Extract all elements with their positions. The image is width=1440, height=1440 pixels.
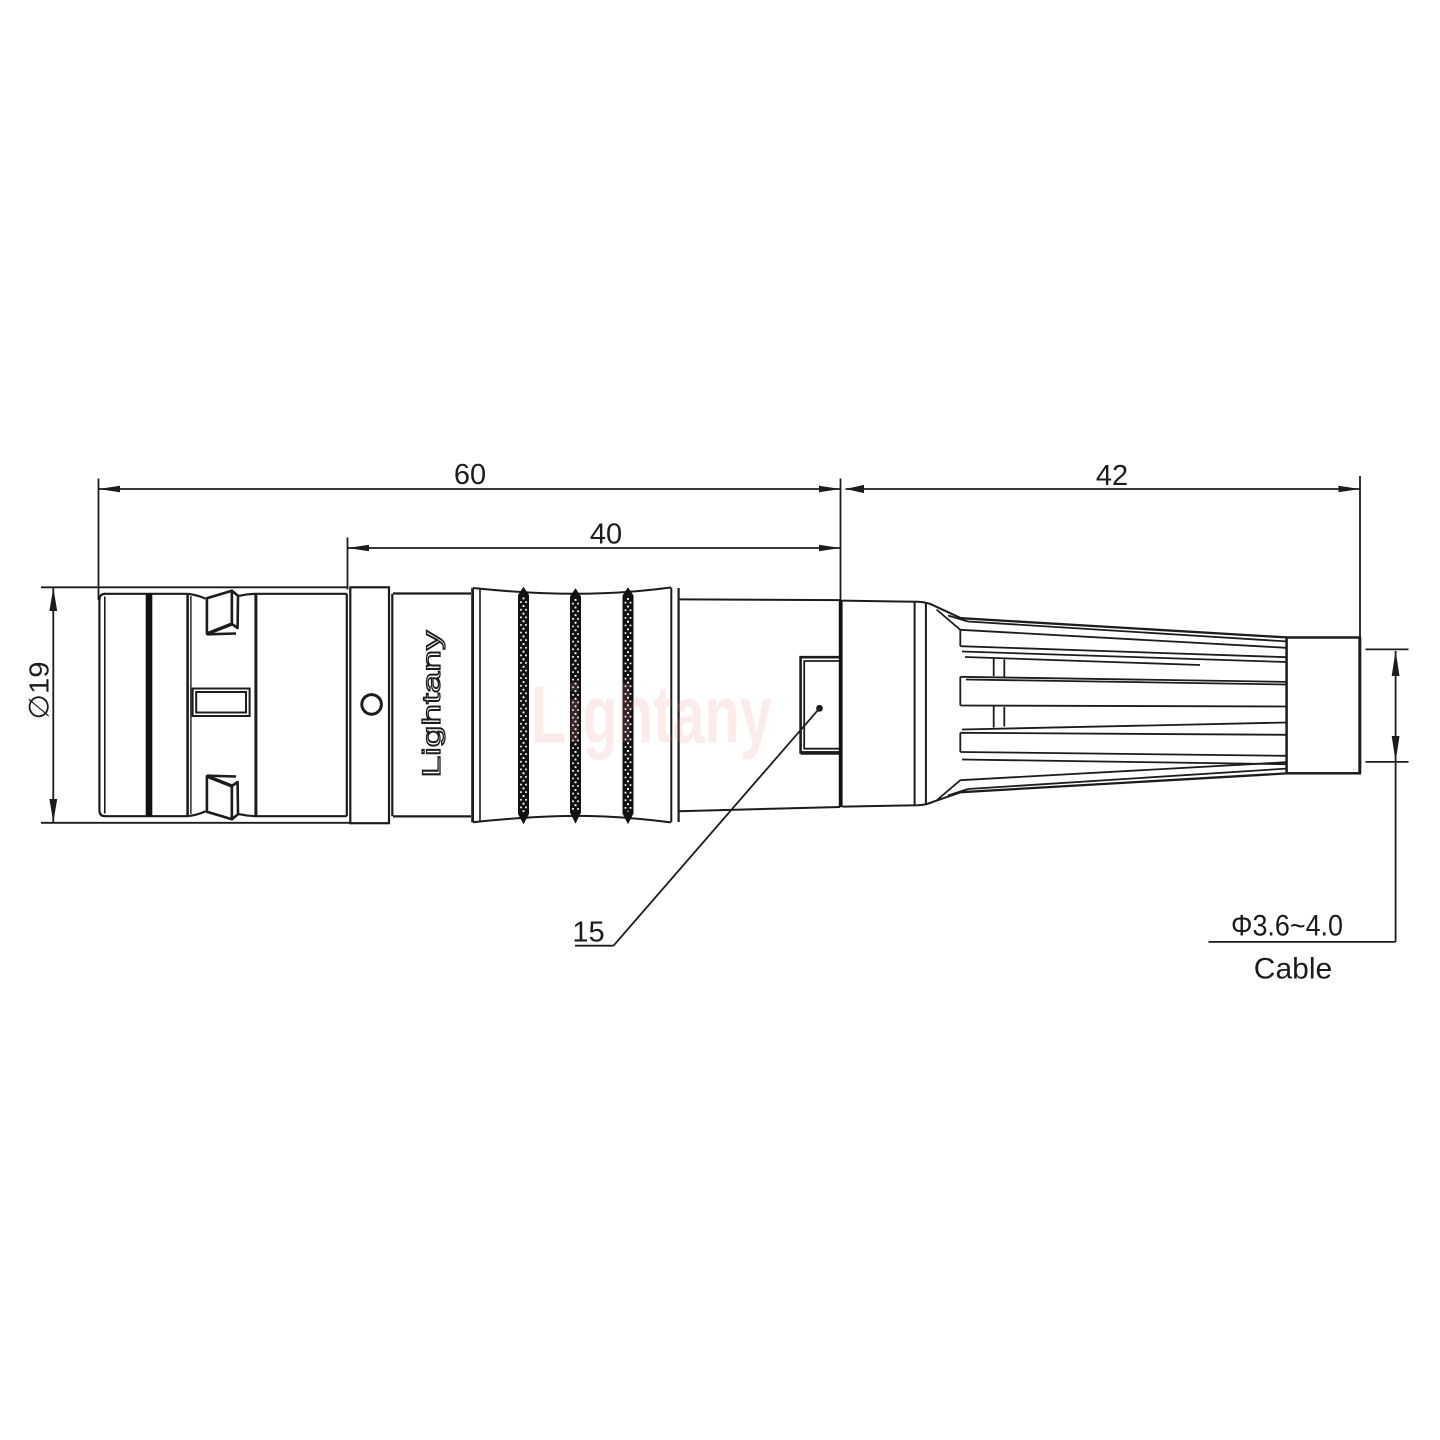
svg-text:60: 60: [454, 459, 486, 491]
svg-text:40: 40: [590, 519, 622, 551]
svg-text:42: 42: [1096, 460, 1128, 492]
svg-text:Lightany: Lightany: [418, 630, 446, 778]
svg-text:Cable: Cable: [1254, 952, 1332, 985]
svg-text:Φ3.6~4.0: Φ3.6~4.0: [1231, 910, 1343, 943]
svg-text:15: 15: [572, 917, 604, 949]
svg-text:Lightany: Lightany: [531, 670, 772, 761]
svg-text:∅19: ∅19: [24, 662, 55, 720]
